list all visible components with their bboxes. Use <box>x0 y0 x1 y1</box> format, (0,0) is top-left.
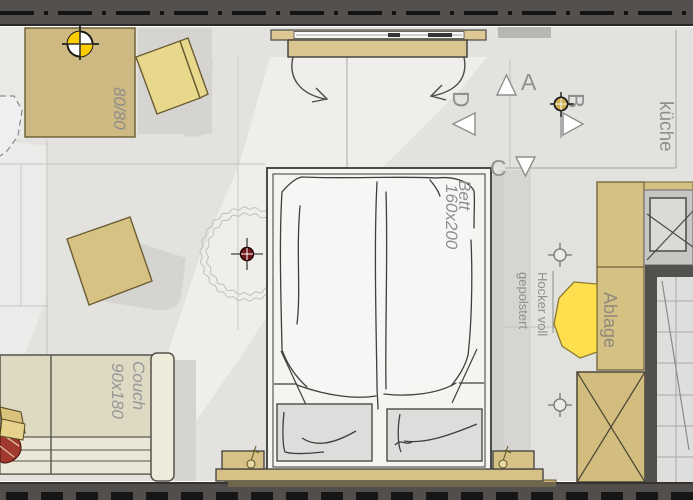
svg-text:160x200: 160x200 <box>442 184 461 250</box>
svg-text:C: C <box>490 155 507 181</box>
svg-text:D: D <box>448 91 474 108</box>
svg-text:Ablage: Ablage <box>600 292 620 348</box>
svg-text:Couch: Couch <box>129 361 148 410</box>
svg-text:90x180: 90x180 <box>108 363 127 419</box>
svg-text:80/80: 80/80 <box>110 87 129 130</box>
svg-text:küche: küche <box>655 101 676 152</box>
svg-text:A: A <box>521 69 537 95</box>
svg-text:Hocker voll: Hocker voll <box>535 272 550 336</box>
svg-text:gepolstert: gepolstert <box>516 272 531 329</box>
